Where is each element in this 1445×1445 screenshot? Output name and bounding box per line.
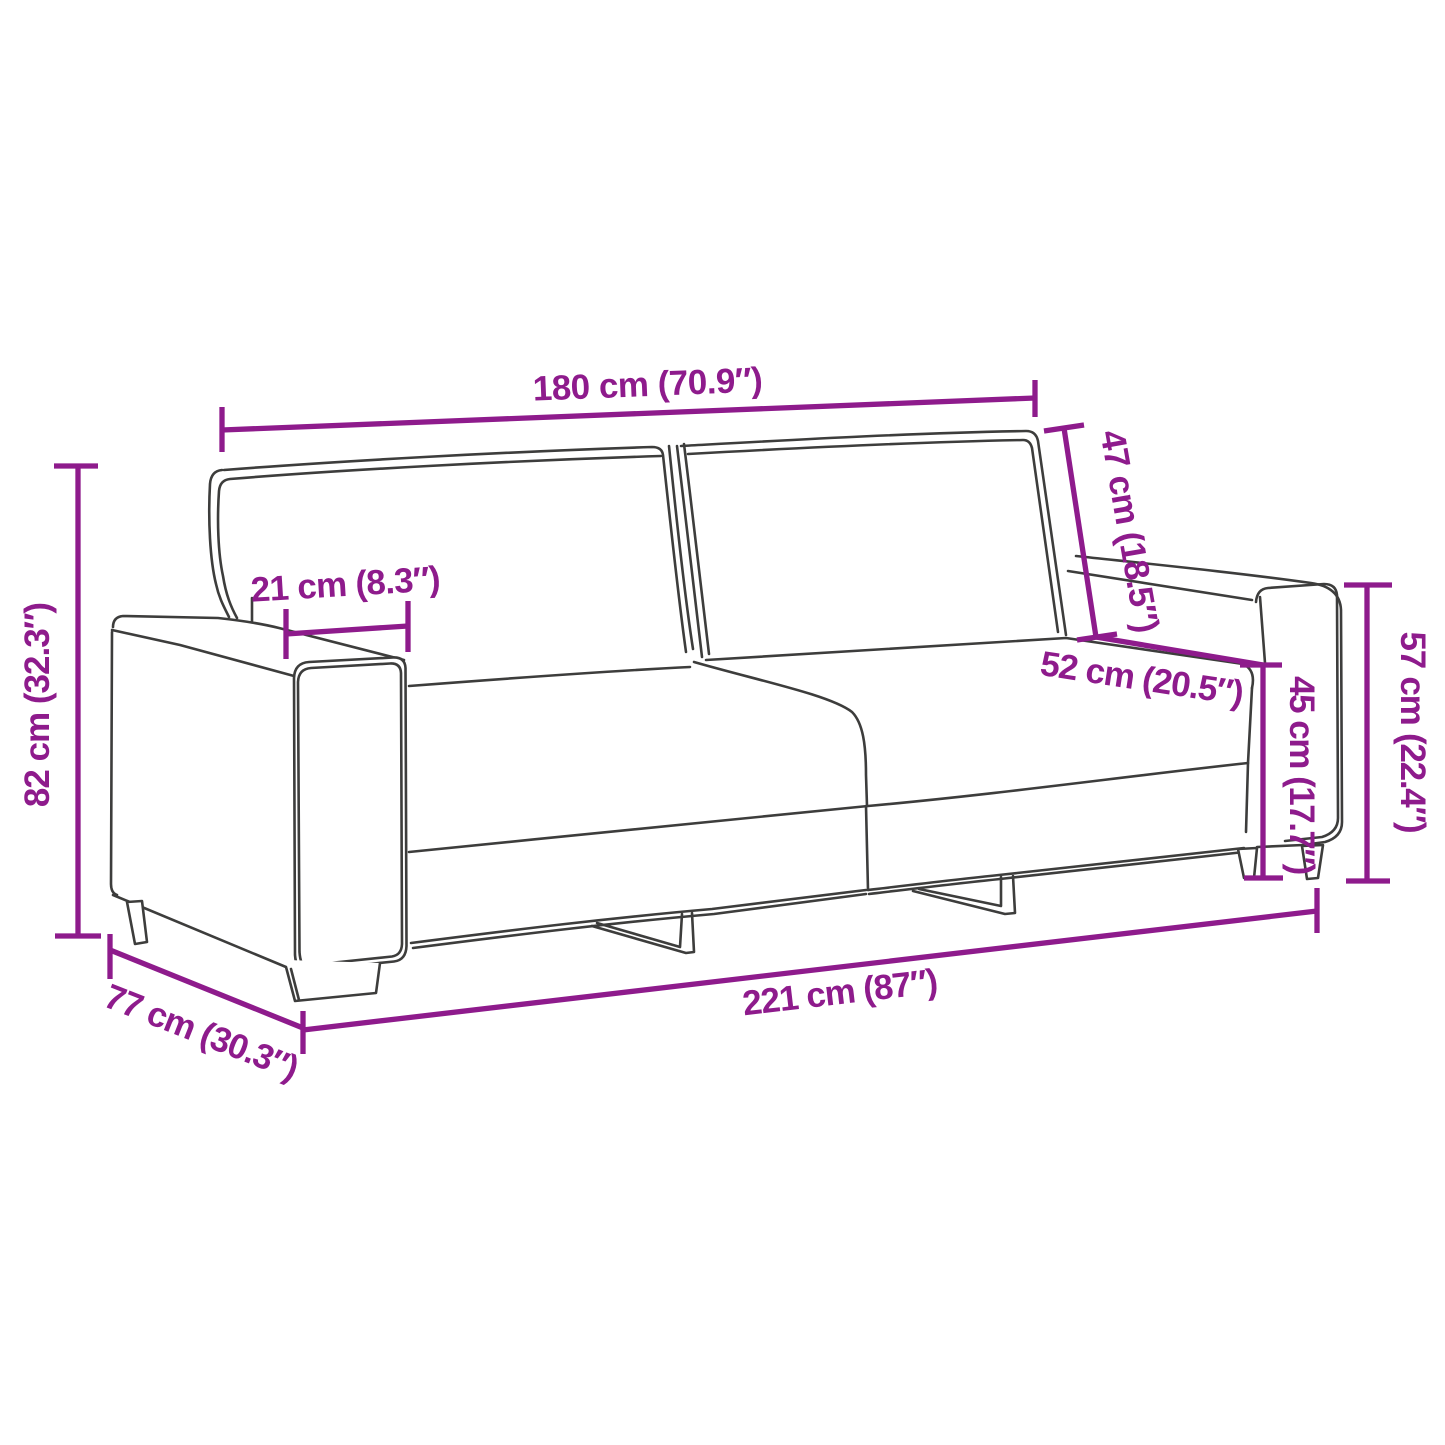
svg-text:45 cm (17.7″): 45 cm (17.7″) — [1282, 676, 1321, 874]
svg-text:82 cm (32.3″): 82 cm (32.3″) — [18, 603, 57, 807]
svg-text:57 cm (22.4″): 57 cm (22.4″) — [1393, 632, 1432, 833]
